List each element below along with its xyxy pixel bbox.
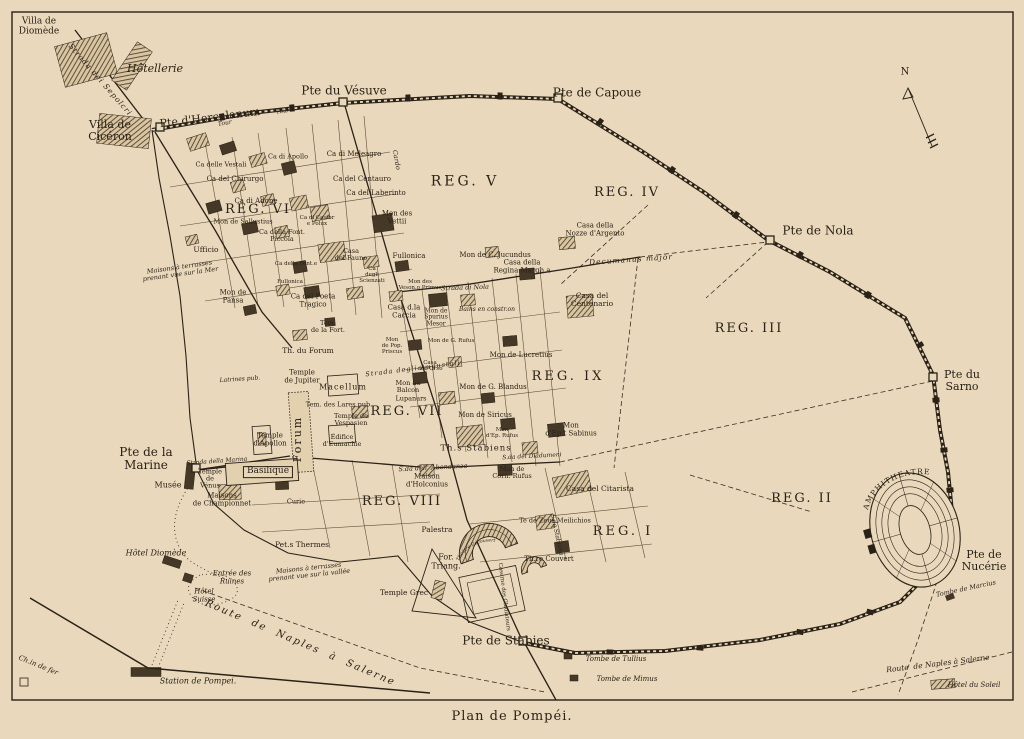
wall-tower (940, 447, 947, 453)
map-label-temple-de-venus: Temple de Vénus (198, 468, 222, 489)
map-label-mon-de-siricus: Mon de Siricus (458, 412, 512, 420)
building-block (293, 329, 308, 340)
map-label-reg-vii: REG. VII (370, 405, 443, 419)
map-label-pte-stabies: Pte de Stabies (462, 635, 549, 648)
paper-background (0, 0, 1024, 739)
map-label-villa-de-ciceron: Villa de Cicéron (88, 119, 132, 143)
map-label-mon-g-blandus: Mon de G. Blandus (459, 384, 526, 392)
map-label-petits-thermes: Pet.s Thermes (275, 541, 329, 549)
map-label-reg-v: REG. V (431, 174, 499, 189)
map-label-lupanars: Lupanars (395, 395, 426, 402)
map-page: AMPHITHEATRE Théâtre Découvert Villa de … (0, 0, 1024, 739)
building-block (570, 675, 578, 681)
map-label-pte-vesuve: Pte du Vésuve (301, 85, 386, 98)
building-block (395, 260, 409, 272)
map-label-curie: Curie (287, 498, 305, 505)
city-gate (766, 236, 774, 244)
map-label-mon-ep-rufus: Mon d'Ep. Rufus (486, 428, 518, 440)
map-label-mon-spurius-mesor: Mon de Spurius Mesor (424, 308, 448, 327)
map-label-mon-c-jucundus: Mon de C. Jucundus (459, 252, 530, 260)
map-label-fullonica-2: Fullonica (277, 280, 303, 286)
map-label-th-du-forum: Th. du Forum (282, 347, 333, 355)
building-block (559, 236, 576, 249)
map-label-mon-de-lucretius: Mon de Lucretius (490, 352, 553, 360)
map-label-pte-marine: Pte de la Marine (119, 446, 172, 472)
map-drawing: AMPHITHEATRE Théâtre Découvert (0, 0, 1024, 739)
map-label-casa-del-citarista: Casa del Citarista (566, 485, 634, 493)
map-label-reg-viii: REG. VIII (362, 495, 442, 509)
map-label-ca-di-castor: Ca di Castor e Polux (300, 216, 335, 228)
map-label-mon-veson-primus: Mon des Veson.o Primus (399, 280, 442, 292)
map-label-macellum: Macellum (319, 384, 367, 393)
wall-tower (946, 487, 953, 493)
map-label-station-de-pompei: Station de Pompei. (160, 678, 237, 687)
map-title: Plan de Pompéi. (0, 709, 1024, 724)
map-label-casa-della-caccia: Casa d.la Caccia (388, 304, 421, 319)
map-label-forum-triangulaire: For. Triang. (431, 553, 460, 570)
map-label-reg-ii: REG. II (771, 492, 833, 506)
map-label-tombe-de-mimus: Tombe de Mimus (597, 676, 658, 684)
map-label-casa-del-centenario: Casa del Centenario (571, 292, 613, 308)
map-label-mon-pop-priscus: Mon de Pop. Priscus (382, 338, 403, 356)
building-block (438, 391, 455, 405)
map-label-compass-n: N (901, 68, 910, 79)
map-label-reg-iii: REG. III (715, 322, 784, 336)
building-block (389, 290, 403, 302)
map-label-musee: Musée (155, 482, 182, 491)
map-label-hotellerie: Hôtellerie (127, 63, 183, 75)
map-label-ufficio: Ufficio (193, 246, 218, 254)
map-label-ca-del-chirurgo: Ca del Chirurgo (207, 176, 264, 184)
map-label-reg-iv: REG. IV (594, 186, 660, 200)
wall-tower (497, 92, 502, 99)
building-block (461, 294, 476, 306)
city-gate (339, 98, 347, 106)
map-label-temple-de-jupiter: Temple de Jupiter (284, 369, 319, 384)
wall-tower (405, 94, 410, 101)
map-label-ca-del-centauro: Ca del Centauro (333, 176, 391, 184)
map-label-ca-di-adone: Ca di Adone (234, 198, 277, 206)
map-label-villa-de-diomede: Villa de Diomède (19, 17, 59, 36)
wall-tower (696, 645, 703, 651)
map-label-ca-delle-vestali: Ca delle Vestali (196, 161, 247, 168)
map-label-ca-del-laberinto: Ca del Laberinto (346, 190, 405, 198)
building-block (481, 392, 495, 403)
map-label-mon-au-balcon: Mon au Balcon (396, 380, 421, 394)
map-label-tem-de-la-fortune: Tem. de la Fort. (311, 320, 345, 334)
map-label-ca-della-font-piccola: Ca della Font. Piccola (259, 229, 305, 243)
map-label-edifice-eumachie: Édifice d'Eumachie (323, 434, 362, 448)
map-label-maisons-championnet: Maisons de Championnet (193, 492, 251, 507)
map-label-mon-corn-rufus: Mon de Corn. Rufus (492, 466, 531, 480)
map-label-hotel-du-soleil: Hôtel du Soleil (948, 682, 1001, 690)
map-label-mon-de-sallustius: Mon de Sallustius (213, 218, 272, 225)
map-label-mon-des-vettii: Mon des Vettii (382, 210, 412, 225)
building-block (346, 286, 363, 299)
map-label-thermes-stabiens: Th.s Stabiens (440, 444, 511, 453)
map-label-temple-vespasien: Temple de Vespasien (334, 413, 368, 427)
map-label-palestra: Palestra (422, 526, 453, 534)
map-label-pte-capoue: Pte de Capoue (553, 87, 641, 100)
map-label-tem-des-lares: Tem. des Lares pub. (306, 401, 373, 408)
map-label-ca-degli-scienzati: Ca degli Scienzati (359, 267, 385, 285)
map-label-entree-des-ruines: Entrée des Ruines (213, 570, 252, 585)
map-label-casa-nozze-argento: Casa della Nozze d'Argento (565, 222, 624, 237)
map-label-reg-i: REG. I (593, 525, 654, 539)
map-label-ca-di-meleagro: Ca di Meleagro (327, 151, 382, 159)
map-label-pte-nola: Pte de Nola (782, 225, 853, 238)
building-block (428, 293, 447, 308)
map-label-ca-di-apollo: Ca di Apollo (268, 153, 308, 160)
map-label-ca-del-poeta-tragico: Ca del Poeta Tragico (291, 293, 336, 308)
map-label-mon-ept-sabinus: Mon d'Ep.t Sabinus (545, 422, 597, 437)
map-label-basilique: Basilique (243, 466, 293, 478)
map-label-forum: Forum (292, 416, 304, 462)
map-label-mon-de-pansa: Mon de Pansa (220, 289, 247, 304)
map-label-casa-regina-margherita: Casa della Regina Margh.a (493, 259, 550, 274)
city-gate (929, 373, 937, 381)
map-label-tombe-de-tullius: Tombe de Tullius (586, 656, 647, 664)
building-block (503, 335, 518, 346)
wall-tower (932, 397, 939, 403)
map-label-bains-en-construction: Bains en constr.on (459, 307, 515, 313)
map-label-maison-holconius: Maison d'Holconius (406, 473, 448, 488)
map-label-pte-sarno: Pte du Sarno (944, 369, 980, 393)
map-label-fullonica-1: Fullonica (393, 253, 426, 261)
map-label-casa-del-fauno: Casa del Fauno (335, 248, 367, 262)
wall-tower (606, 649, 613, 654)
map-label-temple-apollon: Temple d'Apollon (253, 432, 286, 447)
map-label-mon-g-rufus: Mon de G. Rufus (428, 339, 475, 345)
building-block (408, 339, 422, 350)
map-label-hotel-diomede: Hôtel Diomède (126, 550, 187, 559)
map-label-ca-della-fontana: Ca della Font.e (275, 262, 317, 268)
map-label-theatre-couvert: Th.re Couvert (524, 556, 573, 564)
map-label-pte-nucerie: Pte de Nucérie (962, 549, 1007, 573)
map-label-reg-ix: REG. IX (532, 370, 605, 384)
map-label-temple-grec: Temple Grec (380, 589, 428, 597)
